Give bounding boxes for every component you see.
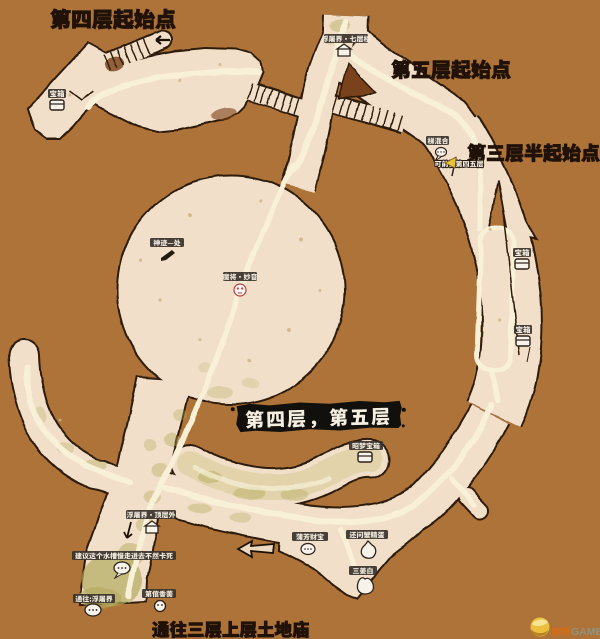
svg-text:GAME: GAME: [571, 626, 600, 638]
